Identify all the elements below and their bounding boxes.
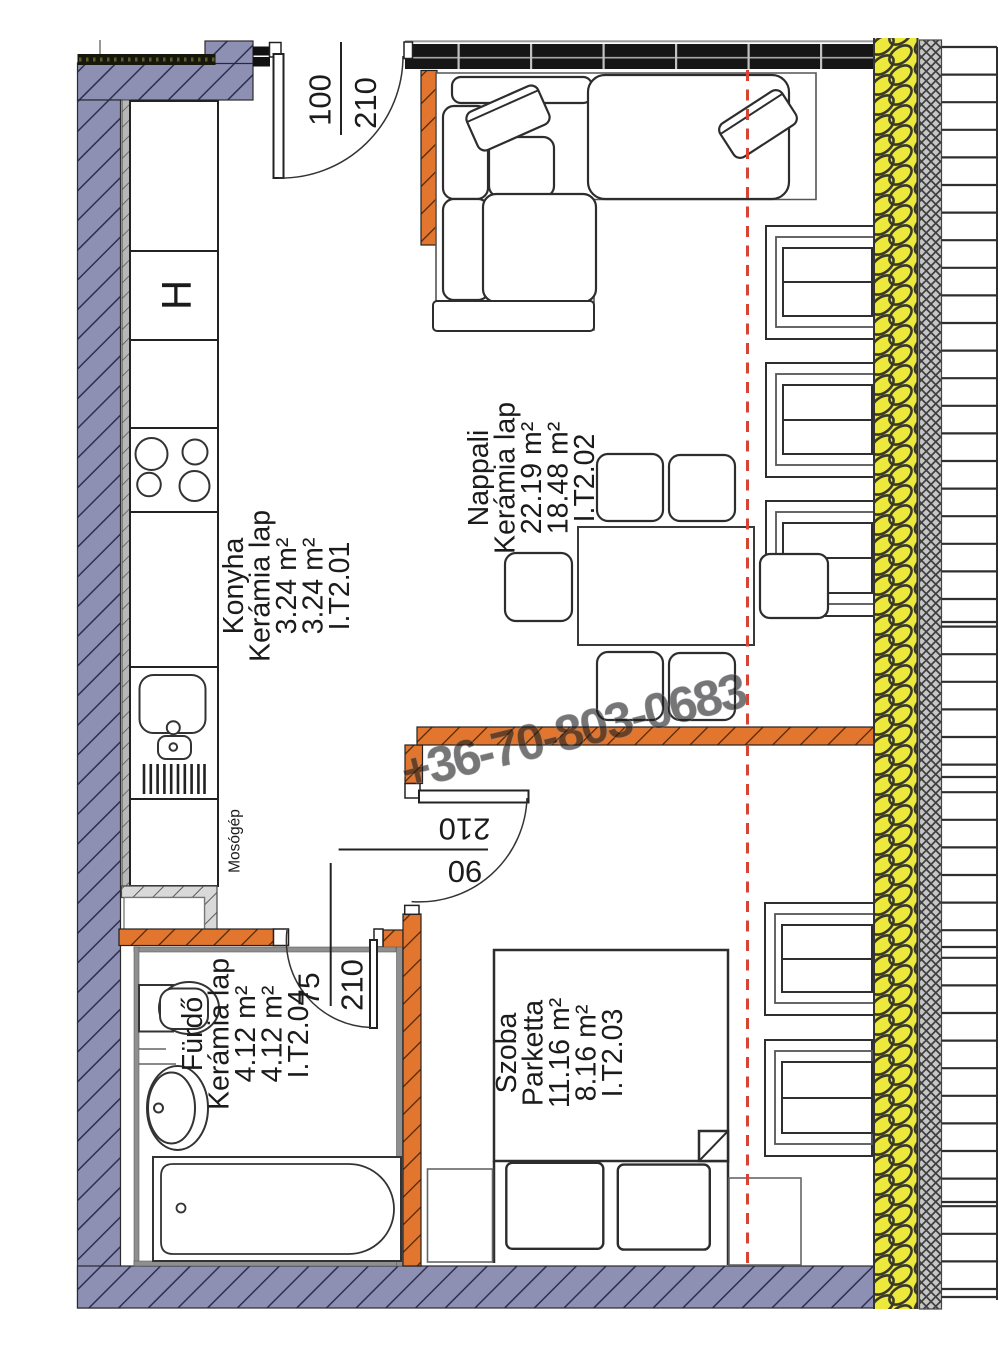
svg-text:210: 210 xyxy=(335,959,370,1011)
svg-text:I.T2.01: I.T2.01 xyxy=(324,542,356,631)
svg-text:I.T2.03: I.T2.03 xyxy=(597,1009,629,1098)
svg-text:Mosógép: Mosógép xyxy=(227,809,244,873)
svg-text:90: 90 xyxy=(448,854,482,889)
svg-text:H: H xyxy=(153,280,200,310)
svg-text:100: 100 xyxy=(303,74,338,126)
svg-text:210: 210 xyxy=(439,812,491,847)
svg-text:I.T2.04: I.T2.04 xyxy=(283,989,315,1078)
svg-text:210: 210 xyxy=(348,77,383,129)
svg-text:I.T2.02: I.T2.02 xyxy=(569,434,601,523)
